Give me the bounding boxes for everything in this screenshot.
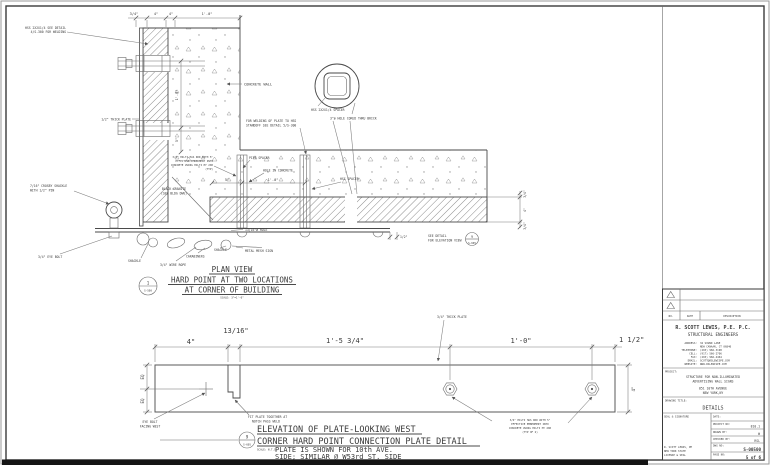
firm-row-key: CELL: bbox=[689, 352, 697, 356]
firm-row-val: SCOTT@RSLEWISPE.COM bbox=[700, 359, 730, 363]
plan-dim-v2: 5" bbox=[175, 138, 179, 142]
firm-row-val: NEW CANAAN, CT 06840 bbox=[700, 345, 732, 349]
label-weld-note-1: FOR WELDING OF PLATE TO HSS bbox=[246, 119, 296, 123]
date-field-label: DATE: bbox=[713, 415, 721, 419]
label-wire-rope: 3/4" WIRE ROPE bbox=[160, 263, 186, 267]
label-hilti-3: CONCRETE USING HILTI HY 200 bbox=[171, 163, 214, 167]
plan-dim-r2: 4" bbox=[523, 208, 527, 212]
seal-label: SEAL & SIGNATURE bbox=[664, 415, 689, 419]
label-see-detail-2: FOR ELEVATION VIEW bbox=[428, 239, 462, 243]
see-detail-bubble: 9 S-605 bbox=[466, 233, 479, 246]
elev-label-hilti-4: (TYP OF 2) bbox=[522, 430, 538, 434]
label-hole-dim: 13/16"ø HOLE bbox=[245, 228, 267, 232]
license-line-1: R. SCOTT LEWIS, PE bbox=[664, 445, 693, 449]
plan-bubble-sheet: S-500 bbox=[144, 289, 152, 293]
label-granite-1: BLACK GRANITE bbox=[162, 187, 186, 191]
plan-title-2: HARD POINT AT TWO LOCATIONS bbox=[171, 276, 293, 285]
firm-row-key: WEBSITE: bbox=[685, 362, 698, 366]
firm-row-val: (917) 566-2706 bbox=[700, 352, 722, 356]
label-pipe-spacer: PIPE SPACER bbox=[249, 156, 270, 160]
concrete-horizontal bbox=[240, 150, 487, 197]
firm-row-key: TELEPHONE: bbox=[681, 348, 697, 352]
label-mesh-sign: METAL MESH SIGN bbox=[245, 249, 273, 253]
label-hss-spacer: HSS 2X2X1/4 SPACER bbox=[311, 108, 345, 112]
firm-row-val: 34 SOUND LANE bbox=[700, 341, 721, 345]
project-line-2: ADVERTISING WALL SIGNS bbox=[693, 380, 734, 384]
license-line-3: LICENSE & SEAL bbox=[664, 453, 686, 457]
elev-dim-4: 1'-0" bbox=[510, 337, 531, 345]
plan-dim-b2: 1'-0" bbox=[268, 178, 279, 182]
label-concrete-wall: CONCRETE WALL bbox=[244, 83, 272, 87]
firm-row-val: WWW.RSLEWISPE.COM bbox=[700, 362, 727, 366]
firm-subtitle: STRUCTURAL ENGINEERS bbox=[688, 332, 739, 337]
plan-dim-r1: 3/4" bbox=[523, 190, 527, 198]
elev-bubble-sheet: S-605 bbox=[243, 443, 251, 447]
elev-dim-eq1: EQ bbox=[140, 374, 145, 380]
firm-row-key: FAX: bbox=[691, 355, 697, 359]
tb-desc-header: DESCRIPTION bbox=[723, 314, 741, 318]
vertical-plate bbox=[140, 28, 144, 226]
label-shackle: SHACKLE bbox=[128, 259, 141, 263]
plan-dim-r3: 3/4" bbox=[523, 222, 527, 230]
wall-break-2 bbox=[141, 123, 170, 140]
elev-dim-2: 13/16" bbox=[223, 327, 248, 335]
label-hole-cored: 3"ø HOLE CORED THRU BRICK bbox=[330, 117, 377, 121]
plan-dim-v1: 1'-0" bbox=[175, 90, 179, 101]
plan-dim-b1: 5" bbox=[225, 178, 229, 182]
sheet-svg: 3/4" 4" 4" 1'-0" 1'-0" 5" 5" 1'-0" 3/4" … bbox=[0, 0, 770, 465]
label-eye-bolt: 3/4" EYE BOLT bbox=[38, 255, 62, 259]
drawn-by-value: W bbox=[758, 432, 760, 436]
tb-date-header: DATE bbox=[687, 314, 694, 318]
project-no-value: 810.1 bbox=[751, 425, 760, 429]
elev-label-hilti-2: EFFECTIVE EMBEDMENT INTO bbox=[511, 422, 549, 426]
plan-dim-top3: 4" bbox=[169, 12, 173, 16]
elev-dim-right: 4" bbox=[631, 386, 636, 391]
label-granite-2: (SEE BLDG DWG) bbox=[161, 192, 187, 196]
drawn-by-label: DRAWN BY: bbox=[713, 430, 727, 434]
elev-label-hilti-1: 3/4" HILTI HAS ROD WITH 5" bbox=[510, 418, 551, 422]
firm-row-val: (203) 966-3198 bbox=[700, 348, 722, 352]
elev-title-1: ELEVATION OF PLATE-LOOKING WEST bbox=[257, 425, 416, 435]
drawing-title-value: DETAILS bbox=[702, 406, 723, 412]
firm-row-val: (203) 966-4464 bbox=[700, 355, 722, 359]
plan-dim-top1: 3/4" bbox=[130, 12, 139, 16]
firm-row-key: EMAIL: bbox=[688, 359, 697, 363]
plan-title-bubble: 1 S-500 bbox=[139, 277, 157, 295]
project-no-label: PROJECT NO: bbox=[713, 422, 730, 426]
drawing-title-label: DRAWING TITLE: bbox=[665, 399, 687, 403]
elev-dim-3: 1'-5 3/4" bbox=[326, 337, 364, 345]
label-carabiners: CARABINERS bbox=[186, 255, 205, 259]
label-hilti-1: 3/4" HILTI HAS ROD WITH 5" bbox=[172, 155, 213, 159]
elev-label-notch-1: FIT PLATE TOGETHER AT bbox=[248, 415, 287, 419]
drawing-sheet: 3/4" 4" 4" 1'-0" 1'-0" 5" 5" 1'-0" 3/4" … bbox=[0, 0, 770, 465]
elev-dim-5: 1 1/2" bbox=[619, 336, 644, 344]
elev-label-hilti-3: CONCRETE USING HILTI HY 200 bbox=[509, 426, 552, 430]
plan-dim-top2: 4" bbox=[154, 12, 158, 16]
dwg-no-label: DWG NO: bbox=[713, 444, 724, 448]
see-detail-bubble-sheet: S-605 bbox=[468, 241, 476, 245]
label-crosby-1: 7/16" CROSBY SHACKLE bbox=[30, 184, 67, 188]
label-hilti-2: EFFECTIVE EMBEDMENT INTO bbox=[176, 159, 214, 163]
label-hole-in-concrete: HOLE IN CONCRETE bbox=[263, 169, 293, 173]
project-line-1: STRUCTURE FOR NON-ILLUMINATED bbox=[686, 375, 740, 379]
label-hss-spacer-2: HSS SPACER bbox=[340, 177, 359, 181]
label-weld-note-2: STANDOFF SEE DETAIL 5/S-300 bbox=[246, 124, 296, 128]
plan-title-1: PLAN VIEW bbox=[212, 265, 253, 274]
firm-name: R. SCOTT LEWIS, P.E. P.C. bbox=[675, 325, 750, 331]
page-no-value: 5 of 6 bbox=[746, 455, 762, 460]
label-shackle-2: SHACKLE bbox=[214, 248, 227, 252]
elev-dim-eq2: EQ bbox=[140, 398, 145, 404]
plate-outline bbox=[155, 365, 615, 412]
elev-title-bubble: 9 S-605 bbox=[239, 432, 255, 448]
elev-label-eye-2: FACING WEST bbox=[140, 425, 161, 429]
label-hss-detail-2: 4/S-300 FOR WELDING bbox=[31, 30, 67, 34]
checked-by-label: CHECKED BY: bbox=[713, 437, 730, 441]
elev-label-eye-1: EYE BOLT bbox=[143, 420, 158, 424]
tb-no-header: NO. bbox=[669, 314, 674, 318]
project-label: PROJECT: bbox=[665, 370, 678, 374]
license-line-2: NEW YORK STATE bbox=[664, 449, 686, 453]
concrete-vertical bbox=[168, 28, 240, 197]
plan-dim-half: 1/2" bbox=[400, 235, 408, 239]
plan-title-3: AT CORNER OF BUILDING bbox=[185, 286, 280, 295]
dwg-no-value: S-00500 bbox=[743, 447, 761, 452]
scan-edge-bar bbox=[2, 460, 648, 465]
page-no-label: PAGE NO: bbox=[713, 453, 726, 457]
label-hilti-4: (TYP) bbox=[205, 167, 213, 171]
see-detail-bubble-num: 9 bbox=[471, 235, 473, 239]
project-line-4: NEW YORK,NY bbox=[703, 391, 724, 395]
wall-break-1 bbox=[141, 55, 170, 72]
elev-label-notch-2: NOTCH PASS WELD bbox=[252, 420, 280, 424]
plan-scale: SCALE: 3"=1'-0" bbox=[220, 296, 244, 300]
label-see-detail-1: SEE DETAIL bbox=[428, 234, 447, 238]
firm-row-key: ADDRESS: bbox=[685, 341, 698, 345]
wall-hole bbox=[345, 196, 357, 223]
project-line-3: 851 10TH AVENUE bbox=[699, 387, 727, 391]
label-thick-plate: 1/2" THICK PLATE bbox=[101, 118, 131, 122]
elev-label-thick-plate: 3/4" THICK PLATE bbox=[437, 315, 467, 319]
elev-dim-1: 4" bbox=[187, 338, 195, 346]
checked-by-value: RSL bbox=[754, 439, 760, 443]
label-crosby-2: WITH 1/2" PIN bbox=[30, 189, 54, 193]
plan-dim-top4: 1'-0" bbox=[202, 12, 213, 16]
